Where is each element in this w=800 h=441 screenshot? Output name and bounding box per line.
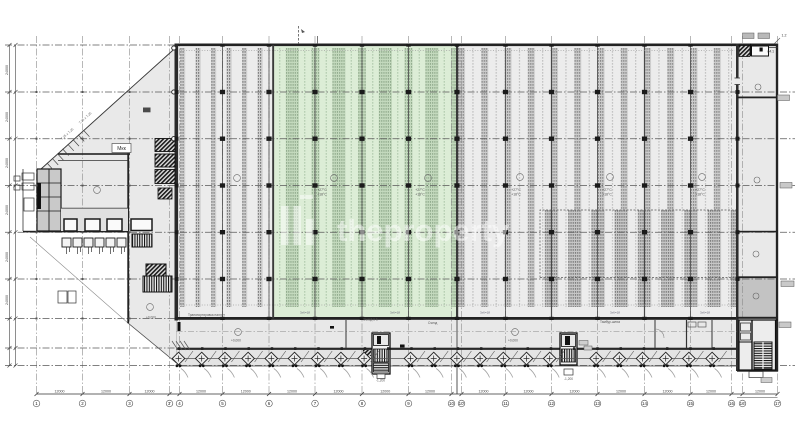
svg-text:16: 16: [729, 401, 734, 406]
svg-text:+18°C: +18°C: [511, 193, 521, 197]
svg-text:12000: 12000: [380, 390, 390, 394]
svg-text:14: 14: [642, 401, 647, 406]
svg-text:12000: 12000: [425, 390, 435, 394]
svg-text:12000: 12000: [663, 390, 673, 394]
svg-text:+27°C: +27°C: [415, 188, 425, 192]
svg-text:3': 3': [168, 401, 171, 406]
svg-text:-1,200: -1,200: [376, 379, 385, 383]
svg-text:10': 10': [459, 401, 465, 406]
svg-text:12000: 12000: [755, 390, 765, 394]
svg-text:Транспортировка паллет: Транспортировка паллет: [188, 313, 225, 317]
svg-text:15: 15: [688, 401, 693, 406]
svg-text:+18°C: +18°C: [602, 193, 612, 197]
svg-text:Съезд 1-1: Съезд 1-1: [363, 318, 378, 322]
svg-text:+0,000: +0,000: [508, 339, 518, 343]
svg-text:12000: 12000: [196, 390, 206, 394]
svg-text:12000: 12000: [287, 390, 297, 394]
svg-text:Мкк: Мкк: [117, 146, 126, 152]
svg-text:+18°C: +18°C: [695, 193, 705, 197]
svg-text:24000: 24000: [5, 295, 9, 305]
svg-text:+27°C: +27°C: [511, 188, 521, 192]
svg-text:3x6=18: 3x6=18: [480, 311, 490, 315]
svg-text:theproperty: theproperty: [337, 213, 510, 248]
svg-text:3x6=18: 3x6=18: [610, 311, 620, 315]
svg-text:+18°C: +18°C: [317, 193, 327, 197]
svg-text:24000: 24000: [5, 205, 9, 215]
svg-text:+27°C: +27°C: [602, 188, 612, 192]
svg-text:17: 17: [775, 401, 780, 406]
svg-text:16': 16': [740, 401, 746, 406]
svg-text:1.2: 1.2: [782, 34, 787, 38]
svg-text:Тамбур-шлюз: Тамбур-шлюз: [600, 320, 621, 324]
svg-text:12000: 12000: [706, 390, 716, 394]
svg-text:12000: 12000: [570, 390, 580, 394]
svg-text:12000: 12000: [479, 390, 489, 394]
svg-text:12000: 12000: [241, 390, 251, 394]
svg-text:12: 12: [549, 401, 554, 406]
svg-text:-1,200: -1,200: [564, 377, 573, 381]
svg-text:12000: 12000: [524, 390, 534, 394]
svg-text:п4.1: п4.1: [768, 50, 775, 54]
svg-text:24000: 24000: [5, 112, 9, 122]
svg-text:+27°C: +27°C: [695, 188, 705, 192]
svg-text:24000: 24000: [5, 158, 9, 168]
svg-text:10: 10: [449, 401, 454, 406]
svg-text:11: 11: [503, 401, 508, 406]
svg-text:24000: 24000: [5, 65, 9, 75]
svg-text:+0,000: +0,000: [146, 316, 156, 320]
svg-text:24000: 24000: [5, 252, 9, 262]
svg-text:Съезд: Съезд: [428, 321, 437, 325]
svg-text:12000: 12000: [616, 390, 626, 394]
svg-text:3x6=18: 3x6=18: [390, 311, 400, 315]
svg-text:+0,000: +0,000: [231, 339, 241, 343]
svg-text:3x6=18: 3x6=18: [300, 311, 310, 315]
svg-text:+18°C: +18°C: [415, 193, 425, 197]
svg-text:12000: 12000: [334, 390, 344, 394]
svg-text:+27°C: +27°C: [317, 188, 327, 192]
svg-text:3x6=18: 3x6=18: [700, 311, 710, 315]
svg-text:13: 13: [595, 401, 600, 406]
svg-text:12000: 12000: [145, 390, 155, 394]
svg-text:12000: 12000: [55, 390, 65, 394]
svg-text:12000: 12000: [101, 390, 111, 394]
